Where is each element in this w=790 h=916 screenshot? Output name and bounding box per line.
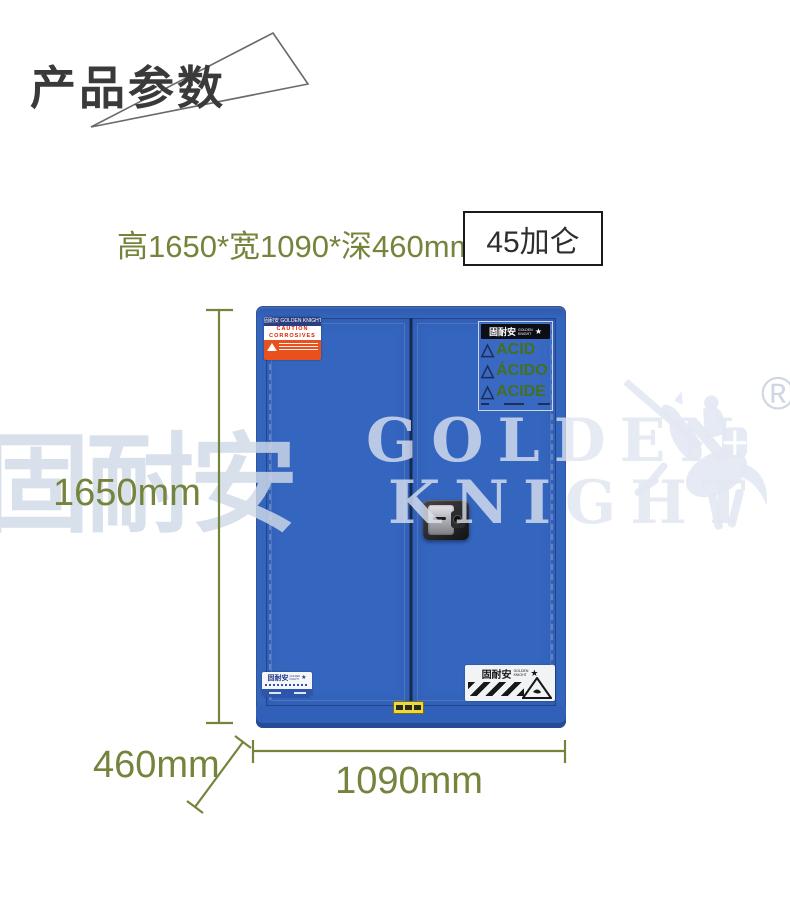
warning-triangle-icon: △ bbox=[481, 341, 494, 358]
depth-dimension-label: 460mm bbox=[93, 744, 220, 787]
caution-corrosives-label: 固耐安 GOLDEN KNIGHT CAUTION CORROSIVES bbox=[264, 317, 321, 360]
acid-text: ACID bbox=[496, 341, 535, 359]
caution-label-brand: 固耐安 GOLDEN KNIGHT bbox=[264, 317, 321, 326]
label-footer-strip bbox=[262, 689, 312, 697]
paddle-lock-handle bbox=[423, 500, 469, 540]
height-dimension-label: 1650mm bbox=[53, 472, 201, 515]
warning-triangle-icon: △ bbox=[481, 362, 494, 379]
product-parameters-page: 产品参数 高1650*宽1090*深460mm 45加仑 固耐安 GOLDEN … bbox=[0, 0, 790, 916]
dimensions-spec-text: 高1650*宽1090*深460mm bbox=[117, 221, 475, 266]
capacity-label: 45加仑 bbox=[486, 217, 579, 261]
left-door-panel-line bbox=[271, 323, 405, 701]
acid-warning-label: 固耐安 GOLDEN KNIGHT ★ △ ACID △ ÁCIDO △ ACI… bbox=[478, 321, 553, 411]
knight-horse-logo-icon bbox=[615, 374, 783, 538]
keyhole-icon bbox=[453, 515, 462, 524]
knight-logo-icon: ★ bbox=[535, 328, 542, 336]
corrosive-triangle-icon bbox=[522, 677, 552, 699]
knight-logo-icon: ★ bbox=[301, 674, 306, 681]
brand-cjk: 固耐安 bbox=[489, 325, 516, 338]
door-seam bbox=[410, 318, 412, 706]
acid-row: △ ÁCIDO bbox=[481, 360, 550, 381]
brand-cjk: 固耐安 bbox=[482, 666, 512, 681]
left-door-hinge-line bbox=[269, 324, 271, 700]
bottom-left-spec-label: 固耐安 GOLDEN KNIGHT ★ bbox=[262, 672, 312, 697]
acid-row: △ ACIDE bbox=[481, 381, 550, 402]
yellow-info-plate bbox=[393, 701, 424, 714]
brand-cjk: 固耐安 bbox=[268, 673, 289, 683]
fine-print-dots bbox=[265, 684, 309, 686]
hazard-stripes bbox=[468, 682, 524, 696]
brand-en: GOLDEN KNIGHT bbox=[290, 675, 301, 681]
fine-print-lines bbox=[481, 403, 550, 405]
page-title: 产品参数 bbox=[30, 52, 226, 118]
lock-slot bbox=[433, 517, 446, 520]
acid-label-brand: 固耐安 GOLDEN KNIGHT ★ bbox=[481, 324, 550, 339]
fine-print-lines bbox=[279, 341, 318, 352]
bottom-right-hazard-label: 固耐安 GOLDEN KNIGHT ★ bbox=[465, 665, 555, 701]
cabinet-left-door bbox=[266, 318, 410, 706]
warning-triangle-icon: △ bbox=[481, 383, 494, 400]
safety-cabinet-image: 固耐安 GOLDEN KNIGHT CAUTION CORROSIVES 固耐安… bbox=[256, 306, 566, 728]
width-dimension-label: 1090mm bbox=[253, 760, 565, 803]
brand-en: GOLDEN KNIGHT bbox=[518, 328, 533, 336]
acide-text: ACIDE bbox=[496, 383, 546, 401]
acido-text: ÁCIDO bbox=[496, 362, 548, 380]
warning-triangle-icon bbox=[267, 343, 277, 351]
registered-trademark-icon: ® bbox=[761, 366, 790, 420]
brand-en: GOLDEN KNIGHT bbox=[514, 669, 529, 677]
acid-row: △ ACID bbox=[481, 339, 550, 360]
caution-label-text: CAUTION CORROSIVES bbox=[264, 326, 321, 340]
capacity-badge: 45加仑 bbox=[463, 211, 603, 266]
